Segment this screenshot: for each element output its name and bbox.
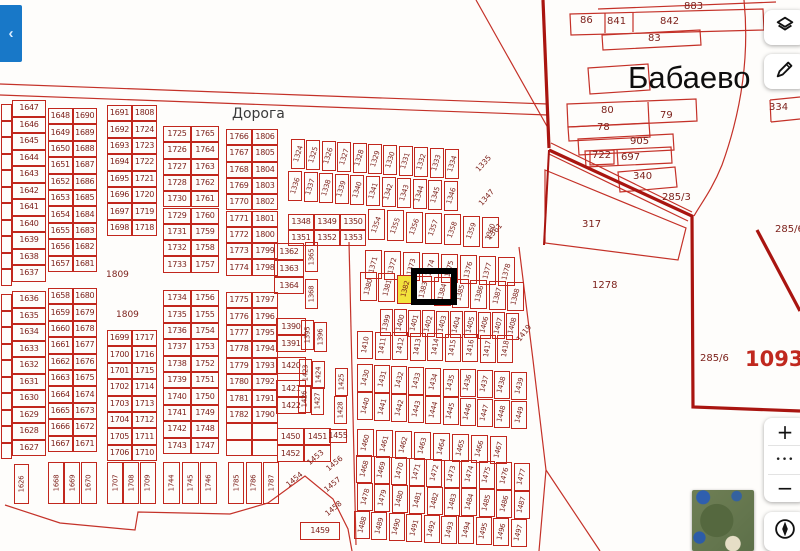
parcel-cell-1461[interactable]: 1461 <box>376 430 393 458</box>
parcel-cell-1653[interactable]: 1653 <box>48 190 73 206</box>
parcel-cell-1449[interactable]: 1449 <box>511 401 527 429</box>
parcel-cell-1665[interactable]: 1665 <box>48 403 73 419</box>
parcel-cell-1632[interactable]: 1632 <box>12 357 46 374</box>
parcel-cell-1342[interactable]: 1342 <box>382 177 396 207</box>
parcel-cell-1657[interactable]: 1657 <box>48 256 73 272</box>
parcel-cell-1804[interactable]: 1804 <box>252 162 278 178</box>
parcel-cell-1683[interactable]: 1683 <box>73 223 98 239</box>
parcel-cell-1396[interactable]: 1396 <box>314 322 327 352</box>
parcel-cell-1768[interactable]: 1768 <box>226 162 252 178</box>
parcel-cell-1658[interactable]: 1658 <box>48 288 73 304</box>
parcel-cell-1495[interactable]: 1495 <box>476 517 492 545</box>
parcel-cell-1723[interactable]: 1723 <box>132 138 157 154</box>
parcel-cell-1640[interactable]: 1640 <box>12 216 46 233</box>
parcel-cell-1725[interactable]: 1725 <box>163 126 191 142</box>
parcel-cell-1662[interactable]: 1662 <box>48 354 73 370</box>
parcel-cell-1776[interactable]: 1776 <box>226 308 252 324</box>
parcel-cell-1744[interactable]: 1744 <box>163 462 180 504</box>
parcel-cell-1759[interactable]: 1759 <box>191 224 219 240</box>
parcel-cell-1755[interactable]: 1755 <box>191 306 219 322</box>
parcel-cell-1661[interactable]: 1661 <box>48 337 73 353</box>
parcel-cell-1678[interactable]: 1678 <box>73 321 98 337</box>
parcel-cell-1656[interactable]: 1656 <box>48 239 73 255</box>
parcel-cell-1637[interactable]: 1637 <box>12 265 46 282</box>
parcel-cell-1719[interactable]: 1719 <box>132 203 157 219</box>
parcel-cell-1338[interactable]: 1338 <box>319 173 333 203</box>
parcel-cell-1641[interactable]: 1641 <box>12 199 46 216</box>
parcel-cell-1424[interactable]: 1424 <box>312 361 325 389</box>
parcel-cell-1350[interactable]: 1350 <box>340 214 366 230</box>
parcel-cell-1802[interactable]: 1802 <box>252 194 278 210</box>
parcel-cell-1709[interactable]: 1709 <box>140 462 156 504</box>
parcel-cell-1483[interactable]: 1483 <box>444 488 460 516</box>
parcel-cell-1363[interactable]: 1363 <box>274 260 304 277</box>
sidebar-collapse-button[interactable]: ‹ <box>0 5 22 62</box>
parcel-cell-1706[interactable]: 1706 <box>107 445 132 461</box>
parcel-cell-1634[interactable]: 1634 <box>12 324 46 341</box>
parcel-cell-1676[interactable]: 1676 <box>73 354 98 370</box>
parcel-cell-1467[interactable]: 1467 <box>490 436 507 464</box>
parcel-cell-1353[interactable]: 1353 <box>340 230 366 246</box>
parcel-cell-1470[interactable]: 1470 <box>391 457 407 485</box>
parcel-cell-1773[interactable]: 1773 <box>226 243 252 259</box>
parcel-cell-1730[interactable]: 1730 <box>163 191 191 207</box>
parcel-cell-1325[interactable]: 1325 <box>306 140 320 170</box>
parcel-cell-1438[interactable]: 1438 <box>494 371 510 399</box>
parcel-cell-1341[interactable]: 1341 <box>366 176 380 206</box>
parcel-cell-1748[interactable]: 1748 <box>191 421 219 437</box>
parcel-cell-1675[interactable]: 1675 <box>73 370 98 386</box>
parcel-cell-1460[interactable]: 1460 <box>357 429 374 457</box>
parcel-cell-1356[interactable]: 1356 <box>406 212 423 243</box>
parcel-cell-1754[interactable]: 1754 <box>191 323 219 339</box>
parcel-cell-1666[interactable]: 1666 <box>48 419 73 435</box>
parcel-cell-1787[interactable]: 1787 <box>263 462 279 504</box>
zoom-in-button[interactable]: + <box>764 418 800 445</box>
parcel-cell-1462[interactable]: 1462 <box>395 431 412 459</box>
parcel-cell-1695[interactable]: 1695 <box>107 171 132 187</box>
parcel-cell-1362[interactable]: 1362 <box>274 243 304 260</box>
parcel-cell-1446[interactable]: 1446 <box>460 398 476 426</box>
parcel-cell-1746[interactable]: 1746 <box>200 462 217 504</box>
parcel-cell-1684[interactable]: 1684 <box>73 206 98 222</box>
parcel-cell-1354[interactable]: 1354 <box>368 209 385 240</box>
parcel-cell-1693[interactable]: 1693 <box>107 138 132 154</box>
parcel-cell-1349[interactable]: 1349 <box>314 214 340 230</box>
parcel-cell-1365[interactable]: 1365 <box>305 242 318 272</box>
parcel-cell-1801[interactable]: 1801 <box>252 211 278 227</box>
parcel-cell-1732[interactable]: 1732 <box>163 240 191 256</box>
parcel-cell-1326[interactable]: 1326 <box>322 141 336 171</box>
parcel-cell-1481[interactable]: 1481 <box>409 486 425 514</box>
parcel-cell-1717[interactable]: 1717 <box>132 330 157 346</box>
parcel-cell-1722[interactable]: 1722 <box>132 154 157 170</box>
parcel-cell-1778[interactable]: 1778 <box>226 341 252 357</box>
parcel-cell-1441[interactable]: 1441 <box>374 393 390 421</box>
parcel-cell-1760[interactable]: 1760 <box>191 208 219 224</box>
parcel-cell-1444[interactable]: 1444 <box>425 396 441 424</box>
parcel-cell-1381[interactable]: 1381 <box>378 273 395 302</box>
parcel-cell-1344[interactable]: 1344 <box>413 179 427 209</box>
parcel-cell-1440[interactable]: 1440 <box>357 392 373 420</box>
parcel-cell-1380[interactable]: 1380 <box>360 272 377 301</box>
parcel-cell-1330[interactable]: 1330 <box>383 145 397 175</box>
parcel-cell-1701[interactable]: 1701 <box>107 363 132 379</box>
parcel-cell-1627[interactable]: 1627 <box>12 440 46 457</box>
parcel-cell-1431[interactable]: 1431 <box>374 365 390 393</box>
parcel-cell-1327[interactable]: 1327 <box>337 142 351 172</box>
parcel-cell-1434[interactable]: 1434 <box>425 368 441 396</box>
parcel-cell-1488[interactable]: 1488 <box>354 511 370 539</box>
parcel-cell-1700[interactable]: 1700 <box>107 346 132 362</box>
measure-button[interactable] <box>764 54 800 89</box>
parcel-cell-1439[interactable]: 1439 <box>511 372 527 400</box>
parcel-cell-1639[interactable]: 1639 <box>12 232 46 249</box>
parcel-cell-1348[interactable]: 1348 <box>288 214 314 230</box>
parcel-cell-1436[interactable]: 1436 <box>460 369 476 397</box>
parcel-cell-1388[interactable]: 1388 <box>507 282 524 311</box>
parcel-cell-1448[interactable]: 1448 <box>494 400 510 428</box>
parcel-cell-1478[interactable]: 1478 <box>357 483 373 511</box>
parcel-cell-1324[interactable]: 1324 <box>291 139 305 169</box>
parcel-cell-1358[interactable]: 1358 <box>444 214 461 245</box>
parcel-cell-1494[interactable]: 1494 <box>458 516 474 544</box>
layers-button[interactable] <box>764 10 800 45</box>
parcel-cell-1753[interactable]: 1753 <box>191 339 219 355</box>
parcel-cell-1777[interactable]: 1777 <box>226 325 252 341</box>
parcel-cell-1465[interactable]: 1465 <box>452 434 469 462</box>
parcel-cell-1628[interactable]: 1628 <box>12 423 46 440</box>
parcel-cell-1736[interactable]: 1736 <box>163 323 191 339</box>
parcel-cell-1411[interactable]: 1411 <box>375 332 391 360</box>
parcel-cell-1688[interactable]: 1688 <box>73 141 98 157</box>
parcel-cell-1650[interactable]: 1650 <box>48 141 73 157</box>
parcel-cell-1668[interactable]: 1668 <box>48 462 64 504</box>
parcel-cell-1487[interactable]: 1487 <box>514 491 530 519</box>
parcel-cell-1771[interactable]: 1771 <box>226 211 252 227</box>
parcel-cell-1645[interactable]: 1645 <box>12 133 46 150</box>
parcel-cell-1774[interactable]: 1774 <box>226 259 252 275</box>
parcel-cell-1745[interactable]: 1745 <box>182 462 199 504</box>
parcel-cell-1699[interactable]: 1699 <box>107 330 132 346</box>
parcel-cell-1368[interactable]: 1368 <box>305 279 318 309</box>
parcel-cell-1750[interactable]: 1750 <box>191 388 219 404</box>
parcel-cell-1682[interactable]: 1682 <box>73 239 98 255</box>
parcel-cell-1741[interactable]: 1741 <box>163 405 191 421</box>
parcel-cell-1452[interactable]: 1452 <box>277 445 304 462</box>
parcel-cell-1474[interactable]: 1474 <box>461 460 477 488</box>
parcel-cell-1791[interactable]: 1791 <box>252 390 278 406</box>
parcel-cell-1715[interactable]: 1715 <box>132 363 157 379</box>
parcel-cell-1729[interactable]: 1729 <box>163 208 191 224</box>
parcel-cell-1332[interactable]: 1332 <box>414 147 428 177</box>
parcel-cell-1739[interactable]: 1739 <box>163 372 191 388</box>
parcel-cell-1797[interactable]: 1797 <box>252 292 278 308</box>
parcel-cell-1707[interactable]: 1707 <box>107 462 123 504</box>
parcel-cell-1331[interactable]: 1331 <box>399 146 413 176</box>
parcel-cell-1735[interactable]: 1735 <box>163 306 191 322</box>
parcel-cell-1337[interactable]: 1337 <box>304 172 318 202</box>
parcel-cell-1417[interactable]: 1417 <box>480 335 496 363</box>
parcel-cell-1413[interactable]: 1413 <box>410 333 426 361</box>
parcel-cell-1412[interactable]: 1412 <box>392 332 408 360</box>
parcel-cell-1477[interactable]: 1477 <box>514 463 530 491</box>
parcel-cell-1786[interactable]: 1786 <box>246 462 262 504</box>
parcel-cell-1631[interactable]: 1631 <box>12 374 46 391</box>
parcel-cell-1649[interactable]: 1649 <box>48 124 73 140</box>
parcel-cell-1713[interactable]: 1713 <box>132 396 157 412</box>
parcel-cell-1414[interactable]: 1414 <box>427 333 443 361</box>
parcel-cell-1447[interactable]: 1447 <box>477 399 493 427</box>
parcel-cell-1473[interactable]: 1473 <box>444 460 460 488</box>
parcel-cell-1669[interactable]: 1669 <box>64 462 80 504</box>
parcel-cell-1674[interactable]: 1674 <box>73 386 98 402</box>
parcel-cell-1459[interactable]: 1459 <box>300 522 340 540</box>
parcel-cell-1691[interactable]: 1691 <box>107 105 132 121</box>
parcel-cell-1445[interactable]: 1445 <box>443 397 459 425</box>
parcel-cell-1670[interactable]: 1670 <box>81 462 97 504</box>
parcel-cell-1471[interactable]: 1471 <box>409 458 425 486</box>
parcel-cell-1455[interactable]: 1455 <box>329 429 347 443</box>
parcel-cell-1694[interactable]: 1694 <box>107 154 132 170</box>
parcel-cell-1482[interactable]: 1482 <box>427 487 443 515</box>
parcel-cell-1765[interactable]: 1765 <box>191 126 219 142</box>
parcel-cell-1751[interactable]: 1751 <box>191 372 219 388</box>
parcel-cell-1642[interactable]: 1642 <box>12 183 46 200</box>
parcel-cell-1792[interactable]: 1792 <box>252 374 278 390</box>
parcel-cell-1329[interactable]: 1329 <box>368 144 382 174</box>
parcel-cell-1794[interactable]: 1794 <box>252 341 278 357</box>
parcel-cell-1472[interactable]: 1472 <box>426 459 442 487</box>
parcel-cell-1451[interactable]: 1451 <box>304 428 331 445</box>
parcel-cell-1780[interactable]: 1780 <box>226 374 252 390</box>
parcel-cell-1790[interactable]: 1790 <box>252 407 278 423</box>
parcel-cell-1761[interactable]: 1761 <box>191 191 219 207</box>
parcel-cell-1418[interactable]: 1418 <box>497 335 513 363</box>
parcel-cell-1425[interactable]: 1425 <box>335 368 348 396</box>
parcel-cell-1793[interactable]: 1793 <box>252 358 278 374</box>
parcel-cell-1357[interactable]: 1357 <box>425 213 442 244</box>
parcel-cell-1427[interactable]: 1427 <box>311 387 324 415</box>
parcel-cell-1767[interactable]: 1767 <box>226 145 252 161</box>
parcel-cell-1359[interactable]: 1359 <box>463 216 480 247</box>
parcel-cell-1734[interactable]: 1734 <box>163 290 191 306</box>
parcel-cell-1763[interactable]: 1763 <box>191 159 219 175</box>
parcel-cell-1647[interactable]: 1647 <box>12 100 46 117</box>
parcel-cell-1480[interactable]: 1480 <box>392 485 408 513</box>
parcel-cell-1340[interactable]: 1340 <box>350 175 364 205</box>
parcel-cell-1486[interactable]: 1486 <box>496 490 512 518</box>
parcel-cell-1677[interactable]: 1677 <box>73 337 98 353</box>
parcel-cell-1740[interactable]: 1740 <box>163 388 191 404</box>
parcel-cell-1672[interactable]: 1672 <box>73 419 98 435</box>
parcel-cell-1728[interactable]: 1728 <box>163 175 191 191</box>
parcel-cell-1712[interactable]: 1712 <box>132 412 157 428</box>
parcel-cell-1724[interactable]: 1724 <box>132 121 157 137</box>
parcel-cell-1731[interactable]: 1731 <box>163 224 191 240</box>
more-tools-button[interactable]: ••• <box>764 446 800 473</box>
parcel-cell-1643[interactable]: 1643 <box>12 166 46 183</box>
parcel-cell-1673[interactable]: 1673 <box>73 403 98 419</box>
parcel-cell-1708[interactable]: 1708 <box>123 462 139 504</box>
parcel-cell-1630[interactable]: 1630 <box>12 390 46 407</box>
parcel-cell-1387[interactable]: 1387 <box>489 281 506 310</box>
parcel-cell-1386[interactable]: 1386 <box>470 280 487 309</box>
parcel-cell-1726[interactable]: 1726 <box>163 142 191 158</box>
parcel-cell-1484[interactable]: 1484 <box>461 488 477 516</box>
parcel-cell-1491[interactable]: 1491 <box>406 514 422 542</box>
parcel-cell-1497[interactable]: 1497 <box>511 519 527 547</box>
parcel-cell-1654[interactable]: 1654 <box>48 206 73 222</box>
parcel-cell-1466[interactable]: 1466 <box>471 435 488 463</box>
parcel-cell-1803[interactable]: 1803 <box>252 178 278 194</box>
parcel-cell-1766[interactable]: 1766 <box>226 129 252 145</box>
parcel-cell-1464[interactable]: 1464 <box>433 433 450 461</box>
parcel-cell-1476[interactable]: 1476 <box>496 462 512 490</box>
parcel-cell-1355[interactable]: 1355 <box>387 210 404 241</box>
parcel-cell-1779[interactable]: 1779 <box>226 358 252 374</box>
parcel-cell-1702[interactable]: 1702 <box>107 379 132 395</box>
parcel-cell-1785[interactable]: 1785 <box>228 462 244 504</box>
parcel-cell-1652[interactable]: 1652 <box>48 174 73 190</box>
parcel-cell-1626[interactable]: 1626 <box>14 464 29 504</box>
parcel-cell-1704[interactable]: 1704 <box>107 412 132 428</box>
parcel-cell-1795[interactable]: 1795 <box>252 325 278 341</box>
parcel-cell-1749[interactable]: 1749 <box>191 405 219 421</box>
parcel-cell-1633[interactable]: 1633 <box>12 341 46 358</box>
parcel-cell-1689[interactable]: 1689 <box>73 124 98 140</box>
parcel-cell-1428[interactable]: 1428 <box>334 396 347 424</box>
parcel-cell-1463[interactable]: 1463 <box>414 432 431 460</box>
parcel-cell-1690[interactable]: 1690 <box>73 108 98 124</box>
parcel-cell-1805[interactable]: 1805 <box>252 145 278 161</box>
parcel-cell-1738[interactable]: 1738 <box>163 356 191 372</box>
parcel-cell-1651[interactable]: 1651 <box>48 157 73 173</box>
parcel-cell-1681[interactable]: 1681 <box>73 256 98 272</box>
parcel-cell-1710[interactable]: 1710 <box>132 445 157 461</box>
parcel-cell-1648[interactable]: 1648 <box>48 108 73 124</box>
parcel-cell-1696[interactable]: 1696 <box>107 187 132 203</box>
parcel-cell-1437[interactable]: 1437 <box>477 370 493 398</box>
parcel-cell-1475[interactable]: 1475 <box>479 461 495 489</box>
parcel-cell-1743[interactable]: 1743 <box>163 438 191 454</box>
parcel-cell-1711[interactable]: 1711 <box>132 428 157 444</box>
parcel-cell-1435[interactable]: 1435 <box>443 369 459 397</box>
parcel-cell-1770[interactable]: 1770 <box>226 194 252 210</box>
parcel-cell-1426[interactable]: 1426 <box>298 385 311 413</box>
zoom-out-button[interactable]: − <box>764 475 800 502</box>
parcel-cell-1752[interactable]: 1752 <box>191 356 219 372</box>
parcel-cell-1479[interactable]: 1479 <box>374 484 390 512</box>
parcel-cell-1489[interactable]: 1489 <box>371 512 387 540</box>
parcel-cell-1346[interactable]: 1346 <box>444 181 458 211</box>
parcel-cell-1468[interactable]: 1468 <box>356 455 372 483</box>
parcel-cell-1772[interactable]: 1772 <box>226 227 252 243</box>
parcel-cell-1685[interactable]: 1685 <box>73 190 98 206</box>
parcel-cell-1796[interactable]: 1796 <box>252 308 278 324</box>
parcel-cell-1667[interactable]: 1667 <box>48 436 73 452</box>
parcel-cell-1716[interactable]: 1716 <box>132 346 157 362</box>
parcel-cell-1718[interactable]: 1718 <box>132 220 157 236</box>
parcel-cell-1698[interactable]: 1698 <box>107 220 132 236</box>
parcel-cell-1697[interactable]: 1697 <box>107 203 132 219</box>
parcel-cell-1493[interactable]: 1493 <box>441 516 457 544</box>
parcel-cell-1808[interactable]: 1808 <box>132 105 157 121</box>
parcel-cell-1469[interactable]: 1469 <box>374 456 390 484</box>
parcel-cell-1339[interactable]: 1339 <box>335 174 349 204</box>
parcel-cell-1364[interactable]: 1364 <box>274 277 304 294</box>
parcel-cell-1410[interactable]: 1410 <box>357 331 373 359</box>
parcel-cell-1737[interactable]: 1737 <box>163 339 191 355</box>
parcel-cell-1714[interactable]: 1714 <box>132 379 157 395</box>
parcel-cell-1443[interactable]: 1443 <box>408 395 424 423</box>
parcel-cell-1334[interactable]: 1334 <box>445 149 459 179</box>
minimap[interactable] <box>692 490 754 551</box>
parcel-cell-1638[interactable]: 1638 <box>12 249 46 266</box>
parcel-cell-1671[interactable]: 1671 <box>73 436 98 452</box>
parcel-cell-1655[interactable]: 1655 <box>48 223 73 239</box>
parcel-cell-1758[interactable]: 1758 <box>191 240 219 256</box>
parcel-cell-1343[interactable]: 1343 <box>397 178 411 208</box>
parcel-cell-1416[interactable]: 1416 <box>462 334 478 362</box>
parcel-cell-1720[interactable]: 1720 <box>132 187 157 203</box>
parcel-cell-1762[interactable]: 1762 <box>191 175 219 191</box>
parcel-cell-1800[interactable]: 1800 <box>252 227 278 243</box>
map-canvas[interactable]: 1647164616451644164316421641164016391638… <box>0 0 800 551</box>
parcel-cell-1496[interactable]: 1496 <box>493 518 509 546</box>
parcel-cell-1703[interactable]: 1703 <box>107 396 132 412</box>
parcel-cell-1423[interactable]: 1423 <box>299 359 312 387</box>
parcel-cell-1764[interactable]: 1764 <box>191 142 219 158</box>
parcel-cell-1757[interactable]: 1757 <box>191 256 219 272</box>
parcel-cell-1680[interactable]: 1680 <box>73 288 98 304</box>
parcel-cell-1747[interactable]: 1747 <box>191 438 219 454</box>
parcel-cell-1687[interactable]: 1687 <box>73 157 98 173</box>
parcel-cell-1782[interactable]: 1782 <box>226 407 252 423</box>
parcel-cell-1635[interactable]: 1635 <box>12 308 46 325</box>
parcel-cell-1442[interactable]: 1442 <box>391 394 407 422</box>
parcel-cell-1336[interactable]: 1336 <box>288 171 302 201</box>
parcel-cell-1769[interactable]: 1769 <box>226 178 252 194</box>
parcel-cell-1644[interactable]: 1644 <box>12 150 46 167</box>
parcel-cell-1663[interactable]: 1663 <box>48 370 73 386</box>
parcel-cell-1756[interactable]: 1756 <box>191 290 219 306</box>
parcel-cell-1646[interactable]: 1646 <box>12 117 46 134</box>
parcel-cell-1733[interactable]: 1733 <box>163 256 191 272</box>
parcel-cell-1781[interactable]: 1781 <box>226 390 252 406</box>
parcel-cell-1727[interactable]: 1727 <box>163 159 191 175</box>
parcel-cell-1345[interactable]: 1345 <box>428 180 442 210</box>
parcel-cell-1629[interactable]: 1629 <box>12 407 46 424</box>
parcel-cell-1636[interactable]: 1636 <box>12 291 46 308</box>
parcel-cell-1333[interactable]: 1333 <box>430 148 444 178</box>
parcel-cell-1721[interactable]: 1721 <box>132 171 157 187</box>
parcel-cell-1686[interactable]: 1686 <box>73 174 98 190</box>
parcel-cell-1328[interactable]: 1328 <box>353 143 367 173</box>
parcel-cell-1450[interactable]: 1450 <box>277 428 304 445</box>
parcel-cell-1485[interactable]: 1485 <box>479 489 495 517</box>
parcel-cell-1679[interactable]: 1679 <box>73 304 98 320</box>
parcel-cell-1705[interactable]: 1705 <box>107 428 132 444</box>
parcel-cell-1659[interactable]: 1659 <box>48 304 73 320</box>
parcel-cell-1806[interactable]: 1806 <box>252 129 278 145</box>
parcel-cell-1490[interactable]: 1490 <box>389 513 405 541</box>
parcel-cell-1433[interactable]: 1433 <box>408 367 424 395</box>
parcel-cell-1742[interactable]: 1742 <box>163 421 191 437</box>
parcel-cell-1664[interactable]: 1664 <box>48 386 73 402</box>
parcel-cell-1432[interactable]: 1432 <box>391 366 407 394</box>
parcel-cell-1430[interactable]: 1430 <box>357 364 373 392</box>
